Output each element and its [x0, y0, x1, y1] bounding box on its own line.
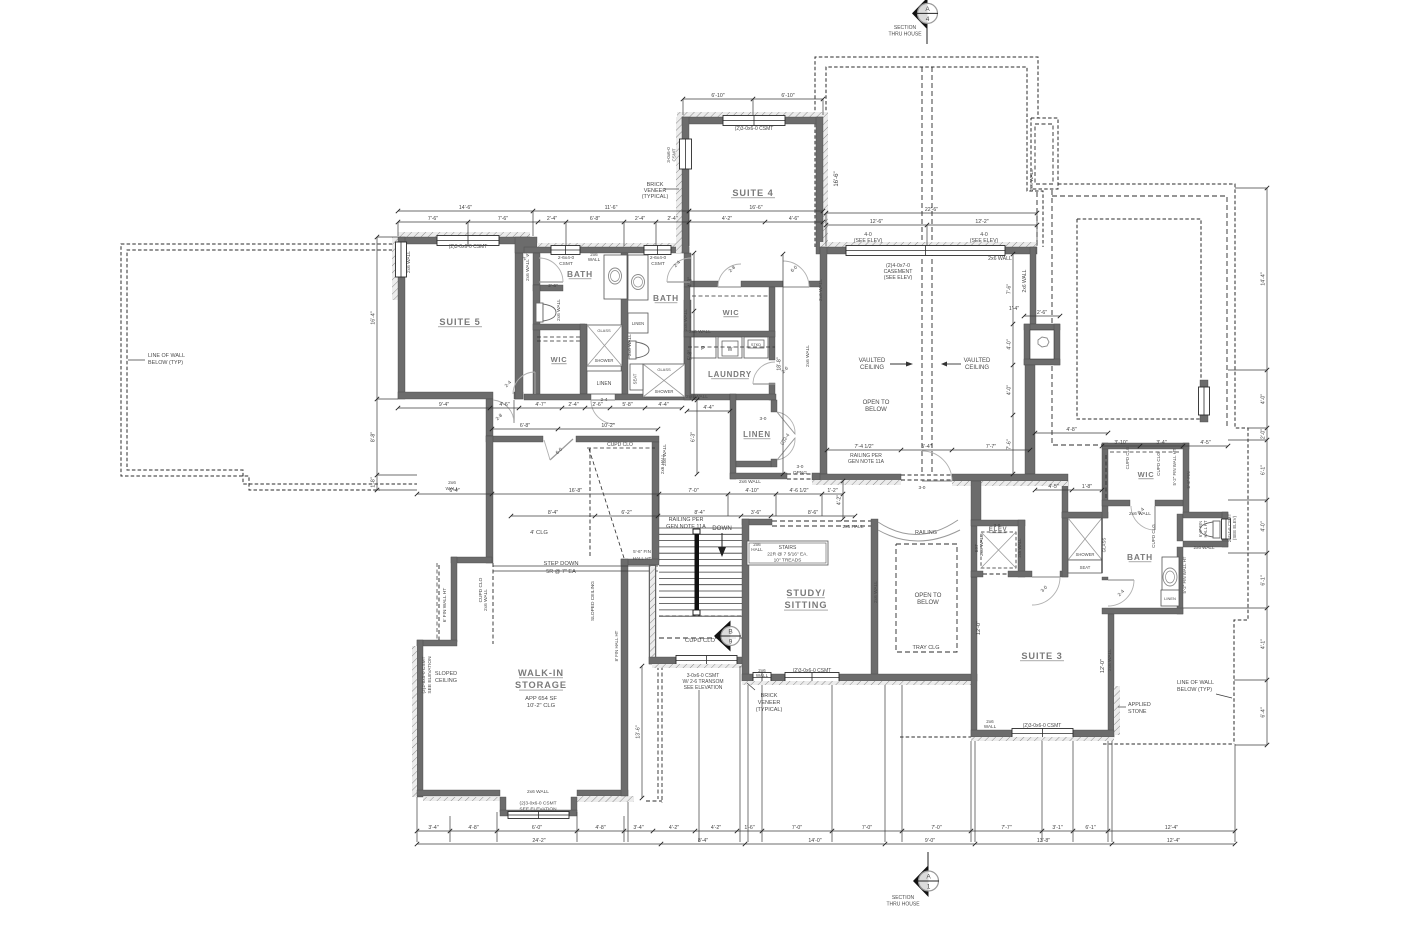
svg-text:6'-4": 6'-4" [449, 488, 459, 494]
svg-text:EXT: EXT [974, 543, 979, 552]
svg-text:GEN NOTE 11A: GEN NOTE 11A [848, 459, 885, 465]
svg-text:2x6 WALL: 2x6 WALL [686, 394, 708, 400]
svg-text:2x6 WALL: 2x6 WALL [527, 789, 549, 795]
svg-text:4'-2": 4'-2" [711, 825, 721, 831]
svg-text:2x6: 2x6 [448, 480, 456, 486]
svg-text:4'-0": 4'-0" [1007, 339, 1013, 349]
svg-text:16'-8": 16'-8" [569, 488, 582, 494]
svg-text:(SEE ELEV): (SEE ELEV) [854, 238, 883, 244]
svg-text:VAULTED: VAULTED [859, 358, 886, 364]
svg-text:3'-6": 3'-6" [751, 510, 761, 516]
svg-text:(2)3-0x6-0 CSMT: (2)3-0x6-0 CSMT [519, 801, 556, 807]
svg-text:DOWN: DOWN [712, 525, 732, 532]
svg-text:STUDY/: STUDY/ [786, 588, 825, 598]
svg-text:WIC: WIC [551, 355, 568, 364]
svg-text:2x6 WALL: 2x6 WALL [483, 589, 489, 611]
svg-text:6'-10": 6'-10" [711, 93, 724, 99]
svg-text:STEP DOWN: STEP DOWN [544, 561, 579, 567]
svg-text:2'-0": 2'-0" [1261, 429, 1267, 439]
svg-text:(TYPICAL): (TYPICAL) [642, 194, 669, 200]
svg-text:4'-1": 4'-1" [1261, 639, 1267, 649]
svg-text:2x6 WALL: 2x6 WALL [739, 479, 761, 485]
svg-text:2-6x4-0: 2-6x4-0 [558, 255, 575, 261]
svg-text:4'-7": 4'-7" [535, 402, 545, 408]
svg-text:14'-6": 14'-6" [459, 205, 472, 211]
svg-text:(2)3-0x6-0 CSMT: (2)3-0x6-0 CSMT [1023, 723, 1062, 729]
svg-text:7'-7": 7'-7" [1001, 825, 1011, 831]
svg-text:SHOWER: SHOWER [1076, 552, 1095, 557]
svg-text:6'-0": 6'-0" [532, 825, 542, 831]
svg-text:GEN NOTE 11A: GEN NOTE 11A [666, 524, 706, 530]
svg-text:16'-6": 16'-6" [834, 171, 840, 186]
svg-text:3'-10": 3'-10" [1114, 440, 1127, 446]
svg-text:(2)3-0x6-0 CSMT: (2)3-0x6-0 CSMT [449, 244, 488, 250]
svg-text:SLOPED CEILING: SLOPED CEILING [590, 581, 596, 621]
svg-text:SEE ELEVATION: SEE ELEVATION [427, 656, 433, 694]
svg-text:VAULTED: VAULTED [964, 358, 991, 364]
svg-text:2x6 WALL: 2x6 WALL [818, 279, 824, 301]
svg-text:2x6 WALL: 2x6 WALL [805, 345, 811, 367]
svg-text:WIC: WIC [723, 308, 740, 317]
svg-text:22R @ 7 5/16" EA.: 22R @ 7 5/16" EA. [767, 552, 807, 558]
svg-text:2x6 WALL: 2x6 WALL [556, 299, 562, 321]
svg-text:BATH: BATH [567, 269, 593, 279]
svg-text:7'-6": 7'-6" [498, 216, 508, 222]
svg-text:2x6 WALL: 2x6 WALL [406, 251, 412, 273]
svg-text:BELOW: BELOW [865, 407, 887, 413]
svg-text:2x6 WALL: 2x6 WALL [683, 309, 689, 331]
svg-text:2'-6": 2'-6" [1037, 310, 1047, 316]
svg-text:4'-6": 4'-6" [789, 216, 799, 222]
svg-text:5'-2" FIN WALL HT: 5'-2" FIN WALL HT [1182, 556, 1187, 593]
svg-text:7'-6": 7'-6" [1007, 284, 1013, 294]
svg-text:7'-6": 7'-6" [1007, 439, 1013, 449]
svg-text:WALK-IN: WALK-IN [518, 668, 564, 678]
svg-text:(SEE ELEV): (SEE ELEV) [970, 238, 999, 244]
svg-text:9'-0": 9'-0" [925, 838, 935, 844]
svg-text:5'-4": 5'-4" [921, 444, 931, 450]
svg-text:CUPD CLG: CUPD CLG [1156, 452, 1161, 476]
svg-text:WALL: WALL [756, 673, 769, 678]
svg-text:7'-0": 7'-0" [688, 488, 698, 494]
svg-text:BELOW: BELOW [917, 600, 939, 606]
svg-text:12'-0": 12'-0" [976, 621, 982, 635]
svg-text:CUPD CLG: CUPD CLG [1151, 524, 1156, 548]
svg-text:8'-4": 8'-4" [694, 510, 704, 516]
svg-text:BELOW (TYP): BELOW (TYP) [148, 360, 183, 366]
svg-text:24'-2": 24'-2" [532, 838, 545, 844]
svg-text:4'-0": 4'-0" [1261, 521, 1267, 531]
svg-text:5'-8": 5'-8" [622, 402, 632, 408]
svg-text:2x6 WALL: 2x6 WALL [525, 259, 531, 281]
svg-text:4'-5": 4'-5" [1200, 440, 1210, 446]
svg-text:STONE: STONE [1128, 709, 1147, 715]
svg-text:OPNG: OPNG [793, 470, 807, 476]
svg-text:B: B [728, 629, 732, 636]
svg-text:THRU HOUSE: THRU HOUSE [888, 32, 922, 38]
svg-text:13'-8": 13'-8" [1037, 838, 1050, 844]
svg-text:3-0: 3-0 [797, 464, 804, 470]
svg-text:3'-4": 3'-4" [633, 825, 643, 831]
svg-text:6'-3": 6'-3" [691, 432, 697, 442]
svg-text:STORAGE: STORAGE [515, 680, 567, 690]
svg-text:SECTION: SECTION [892, 895, 915, 901]
svg-text:4'-2": 4'-2" [722, 216, 732, 222]
svg-text:8' FIN HALL HT: 8' FIN HALL HT [614, 630, 619, 661]
svg-text:SECTION: SECTION [894, 25, 917, 31]
svg-text:9'-4": 9'-4" [439, 402, 449, 408]
svg-text:SEE ELEVATION: SEE ELEVATION [519, 807, 557, 813]
svg-text:WALL: WALL [588, 257, 601, 262]
svg-text:6'-1": 6'-1" [1085, 825, 1095, 831]
svg-text:4'-8": 4'-8" [1066, 427, 1076, 433]
svg-text:2'-4": 2'-4" [667, 216, 677, 222]
svg-text:2'-6": 2'-6" [548, 283, 558, 289]
svg-text:2x6 WALL: 2x6 WALL [988, 256, 1012, 262]
svg-text:LINEN: LINEN [1164, 596, 1176, 601]
svg-text:6'-4": 6'-4" [1261, 707, 1267, 717]
svg-text:2x6 WALL: 2x6 WALL [689, 329, 711, 335]
svg-text:1'-6": 1'-6" [744, 825, 754, 831]
svg-text:A: A [925, 6, 930, 13]
svg-text:OPEN TO: OPEN TO [915, 593, 942, 599]
svg-text:16'-4": 16'-4" [371, 311, 377, 324]
svg-text:SEAT: SEAT [1080, 565, 1091, 570]
svg-text:APPLIED: APPLIED [1128, 702, 1151, 708]
svg-text:RAILING: RAILING [915, 530, 937, 536]
svg-text:9: 9 [729, 639, 733, 646]
svg-text:BATH: BATH [1127, 552, 1153, 562]
svg-text:1'-8": 1'-8" [1082, 484, 1092, 490]
svg-text:VENEER: VENEER [758, 700, 781, 706]
svg-text:SEAT: SEAT [633, 373, 638, 384]
svg-text:3-0: 3-0 [919, 485, 926, 491]
svg-text:CEILING: CEILING [965, 365, 989, 371]
svg-text:HALL: HALL [751, 547, 763, 552]
svg-text:12'-2": 12'-2" [975, 219, 988, 225]
svg-text:2'-4": 2'-4" [547, 216, 557, 222]
svg-text:6'-8": 6'-8" [520, 423, 530, 429]
svg-text:GLASS: GLASS [597, 328, 611, 333]
svg-text:HALL HT: HALL HT [633, 556, 652, 561]
svg-text:2x6 WALL: 2x6 WALL [662, 444, 668, 466]
svg-text:TRAY CLG: TRAY CLG [913, 645, 940, 651]
svg-text:10" TREADS: 10" TREADS [774, 558, 802, 564]
svg-text:10'-2" CLG: 10'-2" CLG [527, 703, 556, 709]
svg-text:5'-6" FIN: 5'-6" FIN [633, 549, 651, 554]
svg-text:2'-4": 2'-4" [568, 402, 578, 408]
svg-text:2-4: 2-4 [601, 397, 608, 403]
svg-text:5R @ 7" EA: 5R @ 7" EA [546, 569, 576, 575]
svg-text:GLASS: GLASS [1102, 538, 1107, 553]
svg-text:4'-5": 4'-5" [1048, 484, 1058, 490]
svg-text:3-0x6-0: 3-0x6-0 [666, 147, 671, 163]
svg-text:(2)3-0x6-0 CSMT: (2)3-0x6-0 CSMT [735, 126, 774, 132]
svg-text:CEILING: CEILING [860, 365, 884, 371]
svg-text:8'-4": 8'-4" [548, 510, 558, 516]
svg-text:RAILING PER: RAILING PER [669, 517, 704, 523]
svg-text:3-0: 3-0 [994, 523, 1001, 528]
svg-text:3'-1": 3'-1" [1052, 825, 1062, 831]
svg-text:5'-8": 5'-8" [688, 350, 694, 360]
svg-text:LAUNDRY: LAUNDRY [708, 370, 752, 379]
svg-text:THRU HOUSE: THRU HOUSE [886, 902, 920, 908]
svg-text:(2)3-0x6-0 CSMT: (2)3-0x6-0 CSMT [793, 668, 832, 674]
svg-text:6' FIN WALL HT: 6' FIN WALL HT [442, 588, 448, 622]
svg-text:BELOW (TYP): BELOW (TYP) [1177, 687, 1212, 693]
svg-text:CSMT: CSMT [672, 148, 677, 161]
svg-text:3-0: 3-0 [760, 416, 767, 422]
svg-text:STKD: STKD [751, 343, 761, 347]
svg-text:6'-8": 6'-8" [590, 216, 600, 222]
svg-text:5'-6" FIN: 5'-6" FIN [1186, 471, 1191, 488]
svg-text:4'-4": 4'-4" [703, 405, 713, 411]
svg-text:7'-7": 7'-7" [986, 444, 996, 450]
svg-text:SEE ELEVATION: SEE ELEVATION [684, 685, 723, 691]
svg-text:3'-4": 3'-4" [428, 825, 438, 831]
svg-text:2x6 WALL: 2x6 WALL [873, 581, 879, 603]
svg-text:12'-6": 12'-6" [870, 219, 883, 225]
svg-text:7'-0": 7'-0" [792, 825, 802, 831]
svg-text:1'-2": 1'-2" [827, 488, 837, 494]
svg-text:W: W [728, 347, 733, 353]
svg-text:2-6x4-0: 2-6x4-0 [650, 255, 667, 261]
svg-text:LINE OF WALL: LINE OF WALL [148, 353, 185, 359]
svg-text:4'-6": 4'-6" [499, 402, 509, 408]
svg-text:OPEN TO: OPEN TO [863, 400, 890, 406]
svg-text:7'-0": 7'-0" [931, 825, 941, 831]
svg-text:BRICK: BRICK [761, 693, 778, 699]
svg-text:SUITE 4: SUITE 4 [732, 188, 773, 198]
svg-text:CUPD CLG: CUPD CLG [1125, 446, 1130, 469]
svg-text:CSMT: CSMT [651, 261, 665, 267]
svg-text:4' CLG: 4' CLG [530, 530, 548, 536]
svg-text:3'-4": 3'-4" [1156, 440, 1166, 446]
svg-text:2x6 WALL: 2x6 WALL [1022, 269, 1028, 292]
svg-text:BATH: BATH [653, 293, 679, 303]
svg-text:(2)2-8x5-0 CSMT: (2)2-8x5-0 CSMT [421, 656, 427, 693]
svg-text:12'-4": 12'-4" [1167, 838, 1180, 844]
svg-text:14'-4": 14'-4" [1261, 272, 1267, 285]
svg-text:6'-2": 6'-2" [621, 510, 631, 516]
svg-text:4'-6 1/2": 4'-6 1/2" [790, 488, 809, 494]
svg-text:1'-4": 1'-4" [1009, 306, 1019, 312]
svg-text:1: 1 [927, 884, 931, 891]
svg-text:4'-8": 4'-8" [468, 825, 478, 831]
svg-text:4'-4": 4'-4" [658, 402, 668, 408]
svg-text:CUPD CLO: CUPD CLO [607, 442, 633, 448]
svg-text:2x6 WALL: 2x6 WALL [1107, 649, 1113, 671]
svg-text:LINE OF WALL: LINE OF WALL [1177, 680, 1214, 686]
svg-text:4'-8": 4'-8" [595, 825, 605, 831]
svg-text:HALL HT: HALL HT [1203, 520, 1208, 538]
svg-text:LINEN: LINEN [597, 381, 612, 387]
svg-text:2x6 WALL: 2x6 WALL [979, 534, 985, 556]
svg-text:2x6 WALL: 2x6 WALL [1029, 169, 1035, 191]
svg-text:6'-1": 6'-1" [1261, 465, 1267, 475]
svg-text:GLASS: GLASS [657, 367, 671, 372]
svg-text:8'-6": 8'-6" [808, 510, 818, 516]
svg-text:(SEE ELEV): (SEE ELEV) [1232, 515, 1237, 540]
svg-text:12'-4": 12'-4" [1165, 825, 1178, 831]
svg-text:2x6 WALL: 2x6 WALL [1193, 545, 1214, 550]
svg-text:STAIRS: STAIRS [779, 545, 797, 551]
svg-text:13'-6": 13'-6" [636, 725, 642, 738]
svg-text:2'-4": 2'-4" [635, 216, 645, 222]
svg-text:4: 4 [926, 16, 930, 23]
svg-text:SUITE 5: SUITE 5 [439, 317, 480, 327]
svg-text:LINEN: LINEN [632, 321, 644, 326]
svg-text:2x6 WALL: 2x6 WALL [1017, 538, 1022, 558]
svg-text:11'-6": 11'-6" [605, 205, 618, 211]
svg-text:7'-6": 7'-6" [428, 216, 438, 222]
svg-text:SHOWER: SHOWER [595, 358, 614, 363]
svg-text:(SEE ELEV): (SEE ELEV) [884, 275, 913, 281]
svg-text:10'-2": 10'-2" [601, 423, 614, 429]
svg-text:8'-8": 8'-8" [371, 432, 377, 442]
svg-text:CSMT: CSMT [559, 261, 573, 267]
svg-text:6'-10": 6'-10" [781, 93, 794, 99]
svg-text:2x6 WALL: 2x6 WALL [627, 334, 633, 356]
svg-text:APP 654 SF: APP 654 SF [525, 696, 557, 702]
svg-text:4'-2": 4'-2" [669, 825, 679, 831]
svg-text:4'-2": 4'-2" [837, 495, 843, 505]
svg-text:SLOPED: SLOPED [435, 671, 457, 677]
svg-text:16'-6": 16'-6" [749, 205, 762, 211]
svg-text:WIC: WIC [1138, 470, 1155, 479]
svg-text:SHOWER: SHOWER [655, 389, 674, 394]
svg-text:5'-2" FIN WALL HT: 5'-2" FIN WALL HT [1172, 448, 1177, 485]
svg-text:WALL: WALL [984, 724, 997, 729]
svg-text:SUITE 3: SUITE 3 [1021, 651, 1062, 661]
svg-text:4'-10": 4'-10" [745, 488, 758, 494]
svg-text:6'-1": 6'-1" [1261, 575, 1267, 585]
svg-text:CUPD CLO: CUPD CLO [685, 638, 715, 644]
svg-text:4'-0": 4'-0" [1007, 385, 1013, 395]
svg-text:12'-0": 12'-0" [1100, 659, 1106, 673]
svg-text:1'-8": 1'-8" [371, 477, 377, 487]
svg-text:4'-3": 4'-3" [688, 277, 694, 287]
svg-text:7'-0": 7'-0" [862, 825, 872, 831]
svg-text:CEILING: CEILING [435, 678, 457, 684]
svg-text:14'-0": 14'-0" [808, 838, 821, 844]
svg-text:7'-4 1/2": 7'-4 1/2" [855, 444, 874, 450]
svg-text:LINEN: LINEN [743, 430, 771, 439]
svg-text:SITTING: SITTING [785, 600, 828, 610]
svg-text:4'-0": 4'-0" [1261, 394, 1267, 404]
svg-text:A: A [926, 874, 931, 881]
svg-text:2x6 HALL: 2x6 HALL [842, 524, 863, 530]
svg-text:8'-4": 8'-4" [698, 838, 708, 844]
svg-text:22'-6": 22'-6" [925, 207, 938, 213]
svg-text:18'-8": 18'-8" [777, 357, 783, 370]
svg-text:(TYPICAL): (TYPICAL) [756, 707, 783, 713]
